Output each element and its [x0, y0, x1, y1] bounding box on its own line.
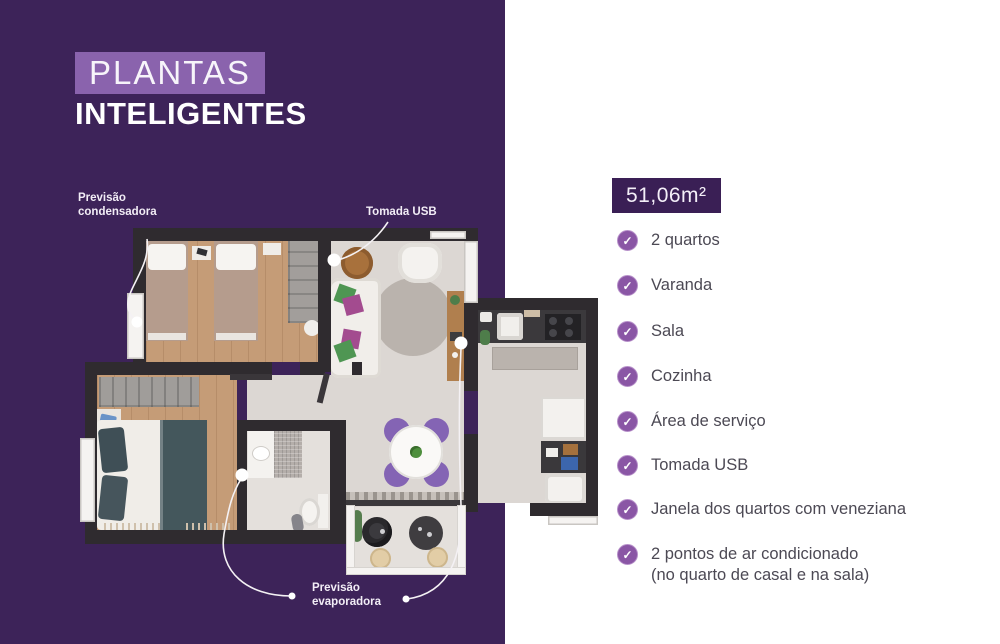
check-icon: ✓ [617, 321, 638, 342]
feature-item-quartos: ✓ 2 quartos [617, 230, 720, 251]
check-icon: ✓ [617, 230, 638, 251]
check-icon: ✓ [617, 499, 638, 520]
feature-item-cozinha: ✓ Cozinha [617, 366, 712, 387]
check-icon: ✓ [617, 544, 638, 565]
feature-item-varanda: ✓ Varanda [617, 275, 712, 296]
feature-item-area-servico: ✓ Área de serviço [617, 411, 766, 432]
check-icon: ✓ [617, 411, 638, 432]
label-tomada-usb: Tomada USB [366, 205, 437, 219]
page: PLANTAS INTELIGENTES [0, 0, 1000, 644]
evaporadora-label-dot-left [289, 593, 296, 600]
tomada-usb-line [338, 222, 388, 260]
label-condensadora: Previsão condensadora [78, 191, 157, 219]
evaporadora-label-dot-right [403, 596, 410, 603]
condensadora-line [128, 239, 148, 320]
check-icon: ✓ [617, 455, 638, 476]
label-evaporadora: Previsão evaporadora [312, 581, 381, 609]
evaporadora-dot-bedroom [236, 469, 249, 482]
check-icon: ✓ [617, 366, 638, 387]
evaporadora-line-right [407, 348, 461, 599]
evaporadora-dot-living [455, 337, 468, 350]
feature-item-tomada-usb: ✓ Tomada USB [617, 455, 748, 476]
tomada-usb-dot [328, 254, 341, 267]
check-icon: ✓ [617, 275, 638, 296]
feature-item-ar-condicionado: ✓ 2 pontos de ar condicionado (no quarto… [617, 544, 869, 586]
condensadora-dot [132, 317, 143, 328]
feature-item-sala: ✓ Sala [617, 321, 684, 342]
feature-item-janela-veneziana: ✓ Janela dos quartos com veneziana [617, 499, 906, 520]
area-badge: 51,06m² [612, 178, 721, 213]
evaporadora-line-left [223, 479, 291, 596]
